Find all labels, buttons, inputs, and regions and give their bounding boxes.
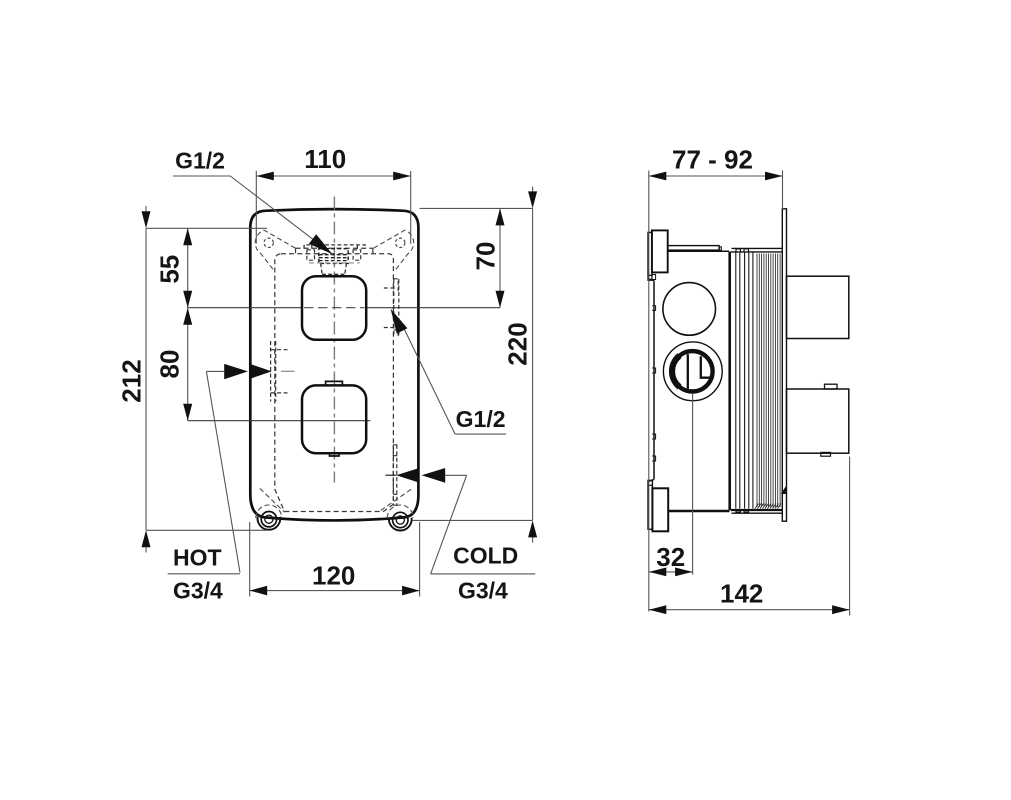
svg-text:32: 32 <box>656 542 685 572</box>
svg-text:70: 70 <box>470 242 500 271</box>
svg-text:55: 55 <box>154 255 184 284</box>
svg-text:G1/2: G1/2 <box>175 148 225 174</box>
svg-text:HOT: HOT <box>173 545 222 571</box>
svg-text:110: 110 <box>304 144 346 174</box>
svg-text:COLD: COLD <box>453 543 518 569</box>
svg-text:G3/4: G3/4 <box>458 578 508 604</box>
svg-text:220: 220 <box>502 322 532 365</box>
svg-text:142: 142 <box>720 579 763 609</box>
svg-text:G3/4: G3/4 <box>173 578 223 604</box>
svg-text:212: 212 <box>117 359 147 402</box>
svg-text:77 - 92: 77 - 92 <box>672 144 753 174</box>
svg-text:120: 120 <box>312 561 355 591</box>
svg-text:G1/2: G1/2 <box>456 406 506 432</box>
svg-text:80: 80 <box>154 350 184 379</box>
